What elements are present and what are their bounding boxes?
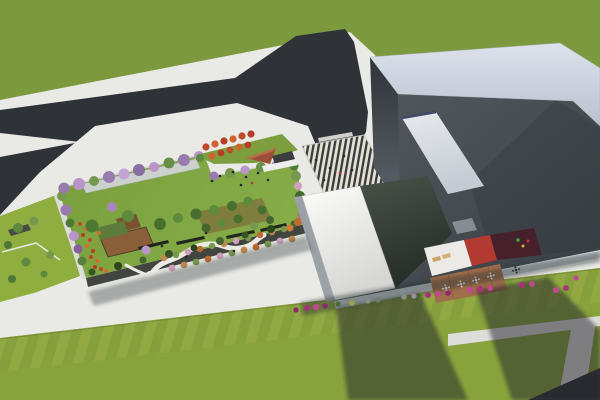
shrub — [304, 305, 310, 311]
tree — [142, 246, 151, 255]
tree — [234, 215, 243, 224]
tree — [78, 257, 87, 266]
person — [185, 256, 188, 259]
shrub — [293, 307, 298, 312]
person — [251, 182, 254, 185]
shrub — [435, 291, 441, 297]
flower-patch — [104, 269, 108, 273]
shrub — [573, 275, 578, 280]
person — [211, 180, 214, 183]
red-tree — [209, 153, 216, 160]
person — [205, 232, 208, 235]
tree — [69, 231, 79, 241]
blossom-tree — [89, 176, 99, 186]
hedge-tree — [242, 232, 249, 239]
shrub — [233, 238, 239, 244]
tree — [46, 251, 54, 259]
red-tree — [202, 143, 209, 150]
blossom-tree — [59, 183, 70, 194]
person — [527, 240, 530, 243]
blossom-tree — [119, 169, 130, 180]
tree — [41, 271, 48, 278]
tree — [8, 275, 16, 283]
person — [219, 175, 222, 178]
flower-patch — [89, 255, 93, 259]
hedge-tree — [216, 237, 224, 245]
shrub — [519, 282, 525, 288]
flower-patch — [97, 231, 101, 235]
shrub — [425, 292, 431, 298]
person — [233, 250, 236, 253]
red-tree — [229, 135, 236, 142]
flower-patch — [88, 238, 92, 242]
tree — [287, 225, 294, 232]
tree — [227, 201, 237, 211]
tree — [66, 219, 75, 228]
shrub — [467, 287, 473, 293]
person — [232, 171, 235, 174]
tree — [294, 182, 302, 190]
blossom-tree — [149, 162, 159, 172]
tree — [209, 205, 219, 215]
tree — [74, 245, 83, 254]
shrub — [185, 249, 191, 255]
tree — [244, 197, 253, 206]
person — [323, 179, 326, 182]
hedge-tree — [140, 257, 147, 264]
red-tree — [245, 142, 252, 149]
tree — [218, 219, 226, 227]
shrub — [375, 297, 380, 302]
red-tree — [227, 147, 234, 154]
shrub — [477, 286, 483, 292]
blossom-tree — [241, 166, 250, 175]
flower-patch — [78, 222, 82, 226]
shrub — [313, 304, 319, 310]
blossom-tree — [133, 164, 145, 176]
tree — [173, 213, 183, 223]
person — [329, 167, 332, 170]
render-canvas — [0, 0, 600, 400]
person — [257, 172, 260, 175]
tree — [202, 224, 211, 233]
tree — [250, 222, 258, 230]
flower-patch — [99, 267, 103, 271]
tree — [30, 217, 39, 226]
shrub — [411, 293, 416, 298]
tree — [191, 209, 202, 220]
tree — [86, 220, 99, 233]
red-tree — [247, 130, 254, 137]
person — [161, 245, 164, 248]
shrub — [445, 290, 451, 296]
person — [245, 176, 248, 179]
blossom-tree — [164, 158, 175, 169]
person — [315, 159, 318, 162]
person — [343, 155, 346, 158]
person — [339, 172, 342, 175]
tree — [13, 223, 23, 233]
flower-patch — [81, 233, 85, 237]
shrub — [209, 243, 215, 249]
shrub — [563, 285, 569, 291]
tree — [291, 171, 301, 181]
shrub — [257, 232, 263, 238]
shrub — [553, 287, 559, 293]
shrub — [335, 301, 340, 306]
red-tree — [196, 154, 204, 162]
tree — [61, 205, 72, 216]
shrub — [529, 281, 535, 287]
flower-patch — [95, 259, 99, 263]
hedge-tree — [165, 250, 173, 258]
red-tree — [236, 144, 243, 151]
tree — [107, 202, 117, 212]
person — [522, 245, 525, 248]
tree — [22, 258, 31, 267]
tree — [266, 216, 274, 224]
shrub — [349, 300, 355, 306]
tree — [4, 241, 12, 249]
shrub — [173, 252, 179, 258]
blossom-tree — [73, 178, 85, 190]
blossom-tree — [178, 154, 190, 166]
red-tree — [220, 137, 227, 144]
shrub — [487, 285, 493, 291]
blossom-tree — [103, 171, 115, 183]
shrub — [281, 226, 287, 232]
flower-patch — [91, 249, 95, 253]
red-tree — [218, 150, 225, 157]
flower-patch — [85, 244, 89, 248]
hedge-tree — [114, 262, 122, 270]
blossom-tree — [210, 172, 219, 181]
shrub — [365, 298, 370, 303]
shrub — [322, 303, 328, 309]
hedge-tree — [267, 225, 275, 233]
person — [267, 179, 270, 182]
tree — [122, 210, 134, 222]
person — [516, 238, 519, 241]
tree — [258, 206, 267, 215]
shrub — [401, 294, 407, 300]
person — [351, 169, 354, 172]
flower-patch — [93, 265, 97, 269]
hedge-tree — [191, 245, 198, 252]
hedge-tree — [89, 269, 96, 276]
red-tree — [238, 132, 245, 139]
person — [240, 184, 243, 187]
tree — [154, 218, 166, 230]
aerial-site-render — [0, 0, 600, 400]
red-tree — [211, 140, 218, 147]
shrub — [197, 246, 203, 252]
